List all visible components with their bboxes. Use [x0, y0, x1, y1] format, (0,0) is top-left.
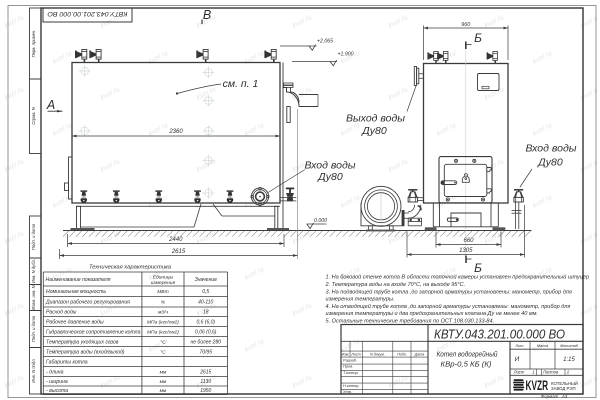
svg-text:не более 280: не более 280 — [190, 339, 221, 345]
svg-text:Взам. инв. N: Взам. инв. N — [31, 284, 36, 309]
svg-text:0,6 (6,0): 0,6 (6,0) — [196, 319, 215, 325]
svg-text:Инв. N дубл.: Инв. N дубл. — [31, 259, 36, 283]
svg-text:И: И — [515, 356, 520, 363]
svg-text:КОТЕЛЬНЫЙ: КОТЕЛЬНЫЙ — [551, 381, 578, 386]
svg-text:Диапазон рабочего регулировани: Диапазон рабочего регулирования — [45, 300, 130, 306]
svg-text:мм: мм — [160, 370, 167, 375]
svg-text:м3/ч: м3/ч — [158, 310, 168, 316]
svg-text:- высота: - высота — [46, 388, 68, 394]
svg-text:18: 18 — [203, 310, 209, 316]
svg-text:Формат: Формат — [541, 394, 559, 399]
svg-text:Масса: Масса — [537, 344, 548, 348]
svg-text:Расход воды: Расход воды — [46, 310, 77, 316]
svg-text:- ширина: - ширина — [46, 379, 68, 385]
svg-text:1950: 1950 — [200, 388, 211, 394]
svg-text:КВТУ.043.201.00.000 ВО: КВТУ.043.201.00.000 ВО — [434, 328, 565, 342]
svg-text:3. На подводящей трубе котла: 3. На подводящей трубе котла ,до запорно… — [326, 288, 572, 295]
svg-text:мм: мм — [160, 389, 167, 394]
svg-text:2615: 2615 — [199, 369, 211, 375]
svg-text:мм: мм — [160, 380, 167, 385]
svg-text:КВр-0,5 КБ (К): КВр-0,5 КБ (К) — [441, 362, 492, 369]
svg-text:960: 960 — [461, 22, 470, 28]
svg-text:Т.контр.: Т.контр. — [343, 370, 359, 375]
svg-text:Котел водогрейный: Котел водогрейный — [437, 351, 498, 359]
svg-text:Масштаб: Масштаб — [560, 344, 579, 348]
svg-text:Единицы: Единицы — [153, 274, 174, 280]
svg-text:2615: 2615 — [171, 249, 186, 255]
svg-text:Справ. N: Справ. N — [31, 106, 36, 124]
svg-text:70/95: 70/95 — [199, 349, 212, 355]
svg-text:°С: °С — [160, 339, 166, 345]
svg-text:А: А — [46, 98, 55, 112]
svg-text:0,5: 0,5 — [202, 289, 209, 295]
svg-text:0,06 (0,6): 0,06 (0,6) — [195, 329, 217, 335]
svg-text:Листов: Листов — [542, 370, 559, 375]
svg-text:Значение: Значение — [195, 277, 218, 283]
svg-text:Лист: Лист — [350, 352, 361, 356]
svg-text:А3: А3 — [561, 394, 568, 399]
svg-text:измерения температуры и два пр: измерения температуры и два предохраните… — [326, 311, 538, 317]
svg-text:Инв. N подл.: Инв. N подл. — [31, 358, 36, 382]
svg-text:Гидравлическое сопротивление к: Гидравлическое сопротивление котла — [46, 329, 141, 335]
svg-text:0.000: 0.000 — [314, 218, 327, 224]
svg-text:Подп. и дата: Подп. и дата — [31, 223, 36, 250]
svg-text:N докум.: N докум. — [370, 352, 385, 356]
svg-text:Изм.: Изм. — [342, 352, 350, 356]
svg-text:измерения температуры.: измерения температуры. — [326, 297, 395, 303]
svg-text:1130: 1130 — [200, 379, 211, 385]
svg-text:%: % — [161, 300, 166, 306]
svg-text:Пров.: Пров. — [343, 364, 353, 369]
svg-text:Рабочее давление воды: Рабочее давление воды — [46, 319, 104, 325]
svg-text:Вход воды: Вход воды — [305, 160, 356, 172]
svg-text:Наименование показателя: Наименование показателя — [46, 277, 111, 283]
svg-text:Вход воды: Вход воды — [526, 143, 577, 155]
svg-text:Ду80: Ду80 — [317, 171, 343, 183]
svg-text:660: 660 — [463, 238, 474, 244]
svg-text:Разраб.: Разраб. — [343, 358, 357, 363]
svg-text:2440: 2440 — [168, 237, 183, 243]
svg-text:Лист: Лист — [513, 370, 525, 375]
svg-text:Температура воды (вход/выход): Температура воды (вход/выход) — [46, 349, 125, 355]
svg-text:Перв. примен.: Перв. примен. — [31, 30, 36, 58]
svg-text:МПа (кгс/см2): МПа (кгс/см2) — [147, 319, 179, 325]
svg-text:ЗАВОД РЭП: ЗАВОД РЭП — [551, 386, 576, 391]
svg-text:+1.900: +1.900 — [337, 52, 353, 58]
svg-text:Дата: Дата — [414, 352, 425, 356]
svg-text:Подп.: Подп. — [397, 352, 407, 356]
svg-text:Лит.: Лит. — [515, 344, 525, 348]
svg-text:Н.контр.: Н.контр. — [343, 383, 359, 388]
svg-text:Б: Б — [474, 31, 482, 45]
svg-text:40-110: 40-110 — [198, 300, 213, 306]
svg-text:1305: 1305 — [459, 248, 473, 254]
svg-text:Б: Б — [474, 261, 482, 275]
svg-text:1: 1 — [532, 370, 534, 375]
svg-text:В: В — [203, 8, 211, 22]
svg-text:2360: 2360 — [168, 129, 183, 135]
svg-text:2. Температура воды на входе: 2. Температура воды на входе 70°С, на вы… — [325, 282, 466, 288]
svg-text:Ду80: Ду80 — [537, 157, 563, 169]
svg-text:Температура уходящих газов: Температура уходящих газов — [46, 339, 119, 345]
svg-text:см. п. 1: см. п. 1 — [223, 78, 259, 90]
svg-text:4. На отводящей трубе котла ,: 4. На отводящей трубе котла ,до запорной… — [326, 303, 571, 310]
svg-text:Утв.: Утв. — [343, 389, 352, 394]
svg-text:Подп. и дата: Подп. и дата — [31, 315, 36, 342]
svg-text:Техническая характеристика: Техническая характеристика — [89, 265, 172, 271]
svg-text:5. Остальные технические треб: 5. Остальные технические требования по О… — [326, 318, 495, 324]
svg-text:1:15: 1:15 — [563, 357, 575, 363]
svg-text:Номинальная мощность: Номинальная мощность — [46, 289, 106, 295]
svg-text:+2.065: +2.065 — [317, 39, 333, 45]
svg-text:1. На боковой стенке котла В: 1. На боковой стенке котла В области топ… — [326, 274, 590, 281]
svg-text:КВТУ.043.201.00.000 ВО: КВТУ.043.201.00.000 ВО — [47, 10, 127, 17]
svg-text:Ду80: Ду80 — [361, 125, 387, 137]
svg-text:°С: °С — [160, 349, 166, 355]
svg-text:KVZR: KVZR — [526, 378, 549, 393]
svg-text:МВт: МВт — [157, 289, 168, 295]
svg-text:Габариты котла: Габариты котла — [46, 359, 88, 365]
svg-text:МПа (кгс/см2): МПа (кгс/см2) — [147, 329, 179, 335]
svg-text:Выход воды: Выход воды — [346, 113, 405, 125]
svg-text:измерения: измерения — [151, 281, 176, 286]
svg-text:- длина: - длина — [46, 369, 64, 375]
